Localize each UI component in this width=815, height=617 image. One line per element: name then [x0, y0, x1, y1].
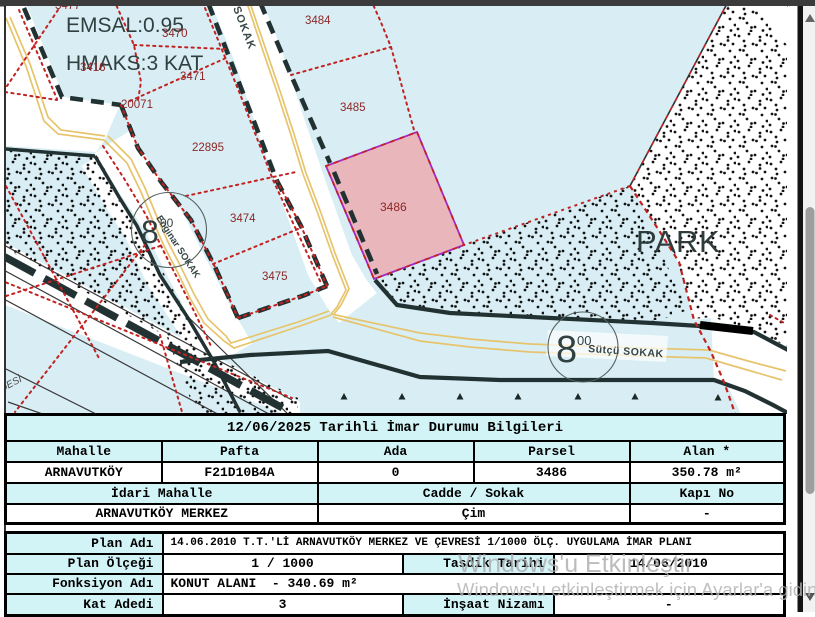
svg-text:Windows'u etkinleştirmek için: Windows'u etkinleştirmek için Ayarlar'a … [457, 579, 815, 600]
svg-text:Windows'u Etkinleştir: Windows'u Etkinleştir [458, 550, 693, 578]
